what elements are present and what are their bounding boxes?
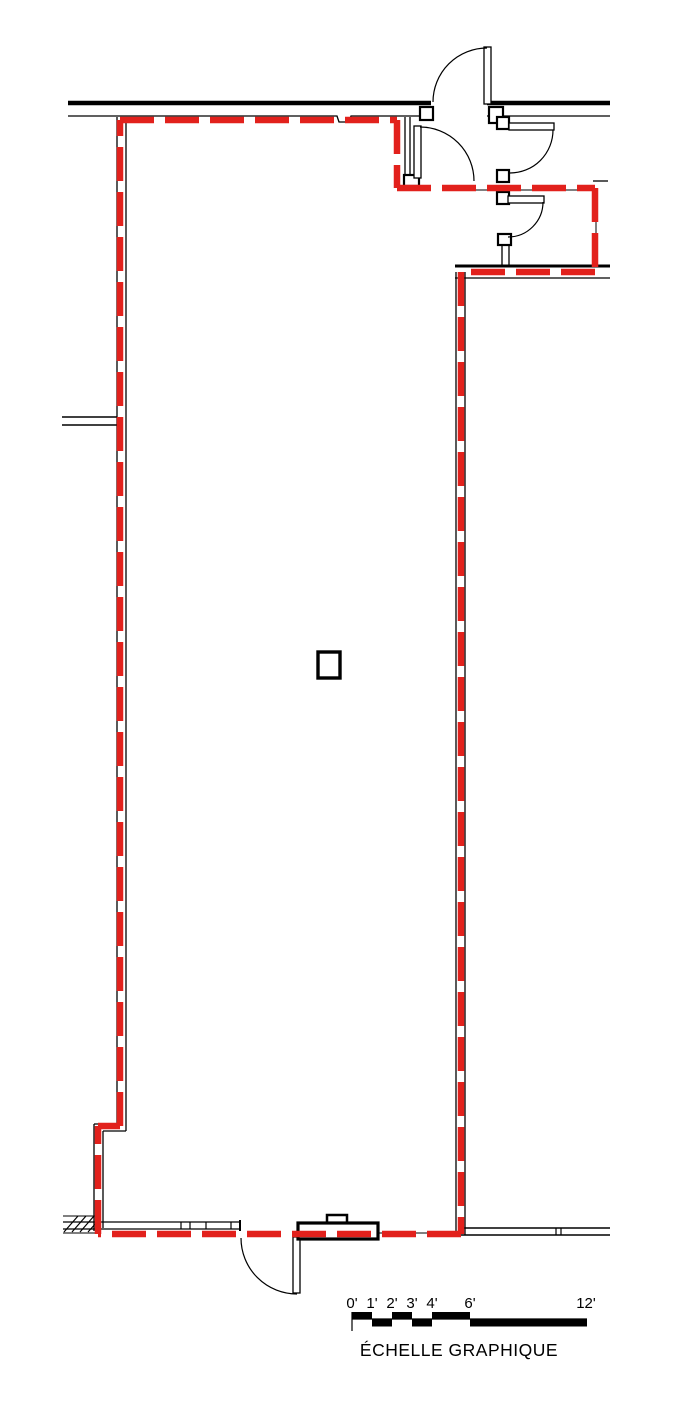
scale-segment (412, 1319, 432, 1327)
door-top-left-jamb (420, 107, 433, 120)
scale-tick-label: 3' (406, 1295, 417, 1312)
scale-caption: ÉCHELLE GRAPHIQUE (360, 1340, 558, 1360)
left-demising-wall (62, 117, 126, 1231)
door-top-swing-arc (433, 48, 487, 102)
door-vestibule-right (497, 117, 554, 182)
door-lower-room-bottom-jamb (498, 234, 511, 245)
scale-bar: 0' 1' 2' 3' 4' 6' 12' ÉCHELLE GRAPHIQUE (346, 1295, 596, 1360)
door-vestibule-right-swing-arc (510, 130, 553, 173)
storefront-glazing-left (63, 1222, 240, 1229)
door-vestibule-left-leaf (414, 126, 421, 178)
glazing-joint-ticks-right (556, 1228, 561, 1235)
glazing-joint-ticks-left (181, 1222, 231, 1229)
door-top (420, 47, 503, 123)
scale-tick-label: 1' (366, 1295, 377, 1312)
page: { "scale_bar": { "labels": [ {"text": "0… (0, 0, 691, 1416)
scale-tick-label: 6' (464, 1295, 475, 1312)
scale-segment (372, 1319, 392, 1327)
door-top-leaf (484, 47, 491, 104)
scale-tick-label: 12' (576, 1295, 596, 1312)
scale-tick-label: 2' (386, 1295, 397, 1312)
scale-segment (352, 1312, 372, 1320)
scale-segment (392, 1312, 412, 1320)
storefront-glazing-right (460, 1228, 610, 1235)
vestibule-wall-stub (502, 244, 509, 266)
door-vestibule-right-bottom-jamb (497, 170, 509, 182)
door-vestibule-left-swing-arc (420, 127, 474, 181)
scale-segment (470, 1319, 587, 1327)
door-lower-room-leaf (508, 196, 544, 203)
door-lower-room-swing-arc (508, 202, 543, 237)
door-vestibule-right-leaf (509, 123, 554, 130)
door-bottom-leaf (293, 1237, 300, 1293)
scale-tick-label: 0' (346, 1295, 357, 1312)
left-wall-stub (62, 417, 117, 425)
scale-segment (432, 1312, 470, 1320)
door-bottom-swing-arc (241, 1238, 297, 1294)
bottom-storefront (63, 1215, 610, 1294)
door-lower-room (497, 192, 544, 245)
lease-boundary (98, 120, 595, 1234)
door-lower-room-top-jamb (497, 192, 509, 204)
existing-wall-hatch (63, 1216, 97, 1233)
vestibule-partition (405, 117, 410, 176)
column-marker (318, 652, 340, 678)
door-vestibule-left (404, 126, 474, 186)
door-vestibule-right-top-jamb (497, 117, 509, 129)
floor-plan-svg: 0' 1' 2' 3' 4' 6' 12' ÉCHELLE GRAPHIQUE (0, 0, 691, 1416)
scale-tick-label: 4' (426, 1295, 437, 1312)
